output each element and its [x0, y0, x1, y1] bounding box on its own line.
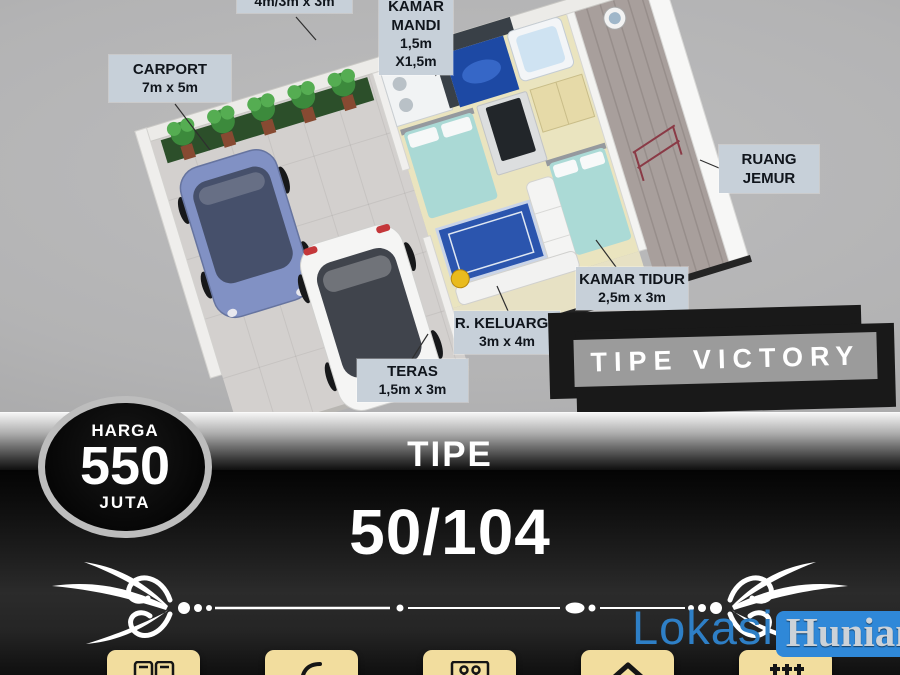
brand-name-part2: Hunian [776, 611, 900, 657]
brand-logo: Lokasi Hunian [632, 604, 900, 657]
flourish-left [52, 562, 212, 644]
brand-name-part1: Lokasi [632, 604, 774, 651]
price-label-bottom: JUTA [99, 493, 150, 513]
divider-line [215, 603, 685, 613]
price-value: 550 [80, 441, 170, 492]
poster: 4m/3m x 3m KAMAR MANDI 1,5m X1,5m CARPOR… [0, 0, 900, 675]
price-badge: HARGA 550 JUTA [38, 396, 212, 538]
ornamental-divider [0, 0, 900, 675]
